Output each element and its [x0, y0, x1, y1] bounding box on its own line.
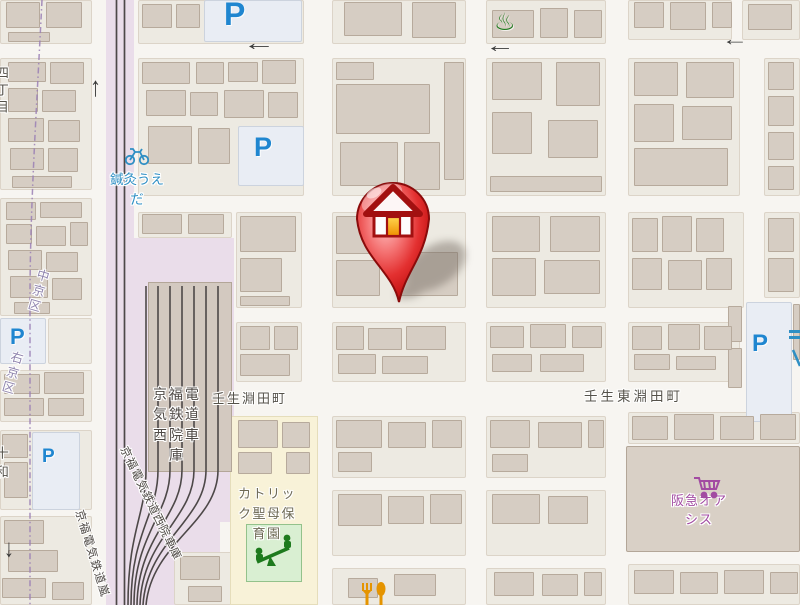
building [48, 148, 78, 172]
building [44, 372, 84, 394]
building [768, 166, 794, 190]
building [240, 258, 282, 292]
building [768, 132, 794, 160]
building [490, 326, 524, 348]
building [238, 420, 278, 448]
building [8, 118, 44, 142]
building [148, 126, 192, 164]
building [768, 96, 794, 126]
building [48, 398, 84, 416]
building [8, 88, 38, 112]
building [180, 556, 220, 580]
building [430, 494, 462, 524]
building [538, 422, 582, 448]
building [406, 326, 446, 350]
building [540, 354, 584, 372]
parking-icon: P [42, 446, 55, 468]
parking-icon: P [10, 324, 25, 350]
building [240, 326, 270, 350]
building [768, 258, 794, 292]
building [198, 128, 230, 164]
building [542, 574, 578, 596]
building [432, 420, 462, 448]
one-way-arrow-down-icon: ↓ [4, 535, 14, 564]
building [728, 348, 742, 388]
building [540, 8, 568, 38]
building [634, 148, 728, 186]
building [240, 216, 296, 252]
building [668, 260, 702, 290]
building [572, 326, 602, 348]
building [680, 572, 718, 594]
building [240, 354, 290, 376]
building [544, 260, 600, 294]
building [490, 420, 530, 448]
building [492, 454, 528, 472]
one-way-arrow-left-icon: ← [243, 30, 276, 56]
building [176, 4, 200, 28]
building [634, 104, 674, 142]
building [682, 106, 732, 140]
building [142, 62, 190, 84]
building [768, 62, 794, 90]
acupuncture-poi-label: 鍼灸うえだ [106, 170, 168, 209]
building [686, 62, 734, 98]
building [634, 354, 670, 370]
building [793, 304, 800, 360]
building [748, 4, 792, 30]
depot-name-label: 京福電気鉄道西院車庫 [150, 384, 204, 465]
clipped-left-edge-label: 十和 [0, 446, 10, 484]
acupuncture-line2: だ [130, 192, 144, 207]
building [394, 574, 436, 596]
parking-lot [746, 302, 792, 422]
railway-corridor [106, 0, 134, 605]
building [142, 4, 172, 28]
building [494, 572, 534, 596]
building [768, 218, 794, 252]
playground-icon [250, 532, 296, 574]
building [492, 354, 532, 372]
building [634, 570, 674, 594]
building [336, 62, 374, 80]
building [274, 326, 298, 350]
building [224, 90, 264, 118]
building [8, 32, 50, 42]
building [674, 414, 714, 440]
town-label-mibu-higashi-fuchida: 壬生東淵田町 [584, 387, 683, 407]
building [6, 224, 32, 244]
building [696, 218, 724, 252]
building [574, 10, 602, 38]
building [46, 2, 82, 28]
building [6, 2, 40, 28]
building [632, 258, 662, 290]
building [724, 570, 764, 594]
building [146, 90, 186, 116]
building [548, 120, 598, 158]
parking-icon: P [752, 330, 768, 358]
fork-spoon-icon [358, 582, 390, 605]
parking-lot [32, 432, 80, 510]
building [492, 112, 532, 154]
building [668, 324, 700, 350]
building [634, 2, 664, 28]
supermarket-line2: シス [685, 512, 713, 527]
building [662, 216, 692, 252]
building [338, 494, 382, 526]
building [490, 176, 602, 192]
building [36, 226, 66, 246]
building [268, 92, 298, 118]
building [240, 296, 290, 306]
building [142, 214, 182, 234]
building [70, 222, 88, 246]
building [556, 62, 600, 106]
building [2, 578, 46, 598]
clipped-chome-label: 四丁目 [0, 66, 10, 117]
building [706, 258, 732, 290]
building [8, 62, 46, 82]
building [338, 354, 376, 374]
building [770, 572, 798, 594]
building [588, 420, 604, 448]
building [238, 452, 272, 474]
building [670, 2, 706, 30]
building [190, 92, 218, 116]
building [704, 326, 732, 350]
building [4, 398, 44, 416]
bicycle-icon [124, 146, 150, 166]
building [368, 328, 402, 350]
building [52, 582, 84, 600]
building [336, 326, 364, 350]
onsen-icon: ♨ [494, 8, 516, 37]
building [6, 202, 36, 220]
building [196, 62, 224, 84]
building [42, 90, 76, 112]
map-canvas[interactable]: 壬生淵田町 壬生東淵田町 京福電気鉄道西院車庫 京福電気鉄道西院車庫 京福電気鉄… [0, 0, 800, 605]
city-block [48, 318, 92, 364]
building [336, 420, 382, 448]
town-label-mibu-fuchida: 壬生淵田町 [212, 390, 287, 409]
building [228, 62, 258, 82]
one-way-arrow-left-icon: ← [722, 29, 749, 50]
building [48, 120, 80, 142]
building [676, 356, 716, 370]
building [344, 2, 402, 36]
building [550, 216, 600, 252]
building [530, 324, 566, 348]
building [632, 416, 668, 440]
parking-icon: P [224, 0, 245, 33]
building [632, 218, 658, 252]
building [50, 62, 84, 84]
building [188, 586, 222, 602]
building [12, 176, 72, 188]
building [336, 84, 430, 134]
one-way-arrow-left-icon: ← [485, 35, 515, 58]
building [720, 416, 754, 440]
building [584, 572, 602, 596]
building [632, 326, 662, 350]
building [548, 496, 588, 524]
building [412, 2, 456, 38]
building [338, 452, 372, 472]
building [388, 422, 426, 448]
one-way-arrow-up-icon: ↑ [90, 71, 101, 104]
building [52, 278, 82, 300]
building [712, 2, 732, 28]
building [634, 62, 678, 96]
building [760, 414, 796, 440]
building [492, 494, 540, 524]
building [492, 258, 536, 296]
building [382, 356, 428, 374]
red-house-map-pin[interactable] [340, 166, 475, 311]
building [286, 452, 310, 474]
shopping-cart-icon [692, 474, 724, 500]
building [46, 252, 78, 272]
building [282, 422, 310, 448]
parking-icon: P [254, 132, 272, 163]
building [10, 148, 44, 170]
building [388, 496, 424, 524]
building [492, 216, 540, 252]
building [492, 62, 542, 100]
building [8, 550, 58, 572]
building [262, 60, 296, 84]
building [188, 214, 224, 234]
building [40, 202, 82, 218]
building [444, 62, 464, 180]
acupuncture-line1: 鍼灸うえ [110, 172, 164, 187]
